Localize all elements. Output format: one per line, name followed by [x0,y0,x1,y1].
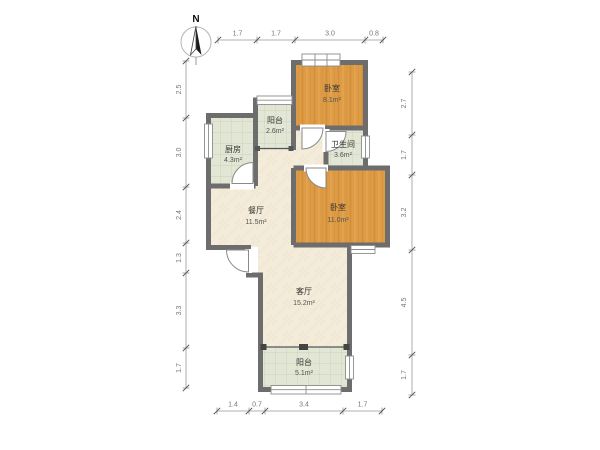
dimension-left: 2.5 3.0 2.4 1.3 3.3 1.7 [176,58,190,391]
balcony-bottom-label: 阳台 [296,357,312,367]
dim-top-3: 0.8 [369,31,379,38]
floorplan-svg: 卧室 8.1m² 阳台 2.6m² 厨房 4.3m² 卫生间 3.6m² 卧室 … [0,0,600,450]
dim-top-1: 1.7 [271,31,281,38]
living-balcony-slider-cap-right [344,344,350,350]
dim-top-2: 3.0 [325,31,335,38]
dim-left-5: 1.7 [176,363,183,373]
compass-needle-light [191,26,197,55]
dim-right-2: 3.2 [401,208,408,218]
kitchen-area: 4.3m² [224,157,243,164]
living-label: 客厅 [296,286,312,296]
dimension-top: 1.7 1.7 3.0 0.8 [215,31,386,44]
dim-right-1: 1.7 [401,150,408,160]
dim-left-1: 3.0 [176,148,183,158]
bedroom-right-area: 11.0m² [327,217,349,224]
entry-door-swing [227,250,249,272]
dimension-right: 2.7 1.7 3.2 4.5 1.7 [401,69,416,398]
balcony-top-area: 2.6m² [266,128,285,135]
dim-left-3: 1.3 [176,253,183,263]
bedroom-top-label: 卧室 [324,83,340,93]
dim-right-3: 4.5 [401,298,408,308]
bedroom-top-floor [294,62,366,128]
compass: N [181,14,211,65]
dim-left-4: 3.3 [176,306,183,316]
balcony-bottom-floor [260,347,350,390]
dim-left-2: 2.4 [176,210,183,220]
bedroom-top-area: 8.1m² [323,97,342,104]
living-floor [258,245,350,347]
dimension-bottom: 1.4 0.7 3.4 1.7 [214,402,385,415]
floor-fills [208,62,388,390]
living-area: 15.2m² [293,300,315,307]
dim-left-0: 2.5 [176,85,183,95]
dim-bottom-3: 1.7 [358,402,368,409]
balcony-top-slider-cap-left [255,146,260,151]
living-balcony-slider-cap-center [299,344,308,350]
dim-bottom-labels: 1.4 0.7 3.4 1.7 [228,402,367,409]
dim-bottom-2: 3.4 [299,402,309,409]
bathroom-label: 卫生间 [331,139,355,149]
dim-bottom-1: 0.7 [252,402,262,409]
compass-north-label: N [192,14,199,25]
dining-label: 餐厅 [248,206,264,215]
dining-area: 11.5m² [245,219,267,226]
dim-right-4: 1.7 [401,370,408,380]
compass-needle-dark [196,26,202,55]
floorplan-canvas: 卧室 8.1m² 阳台 2.6m² 厨房 4.3m² 卫生间 3.6m² 卧室 … [0,0,600,450]
dim-bottom-0: 1.4 [228,402,238,409]
kitchen-label: 厨房 [225,144,241,154]
dim-left-labels: 2.5 3.0 2.4 1.3 3.3 1.7 [176,85,183,373]
living-balcony-slider-cap-left [261,344,267,350]
dim-right-0: 2.7 [401,99,408,109]
dim-right-labels: 2.7 1.7 3.2 4.5 1.7 [401,99,408,380]
dim-top-labels: 1.7 1.7 3.0 0.8 [233,31,379,38]
balcony-top-slider-cap-right [289,146,294,151]
balcony-top-label: 阳台 [267,115,283,125]
balcony-bottom-area: 5.1m² [295,370,314,377]
bedroom-right-label: 卧室 [330,202,346,212]
dim-top-0: 1.7 [233,31,243,38]
balcony-top-floor [255,100,294,150]
bathroom-area: 3.6m² [334,152,353,159]
